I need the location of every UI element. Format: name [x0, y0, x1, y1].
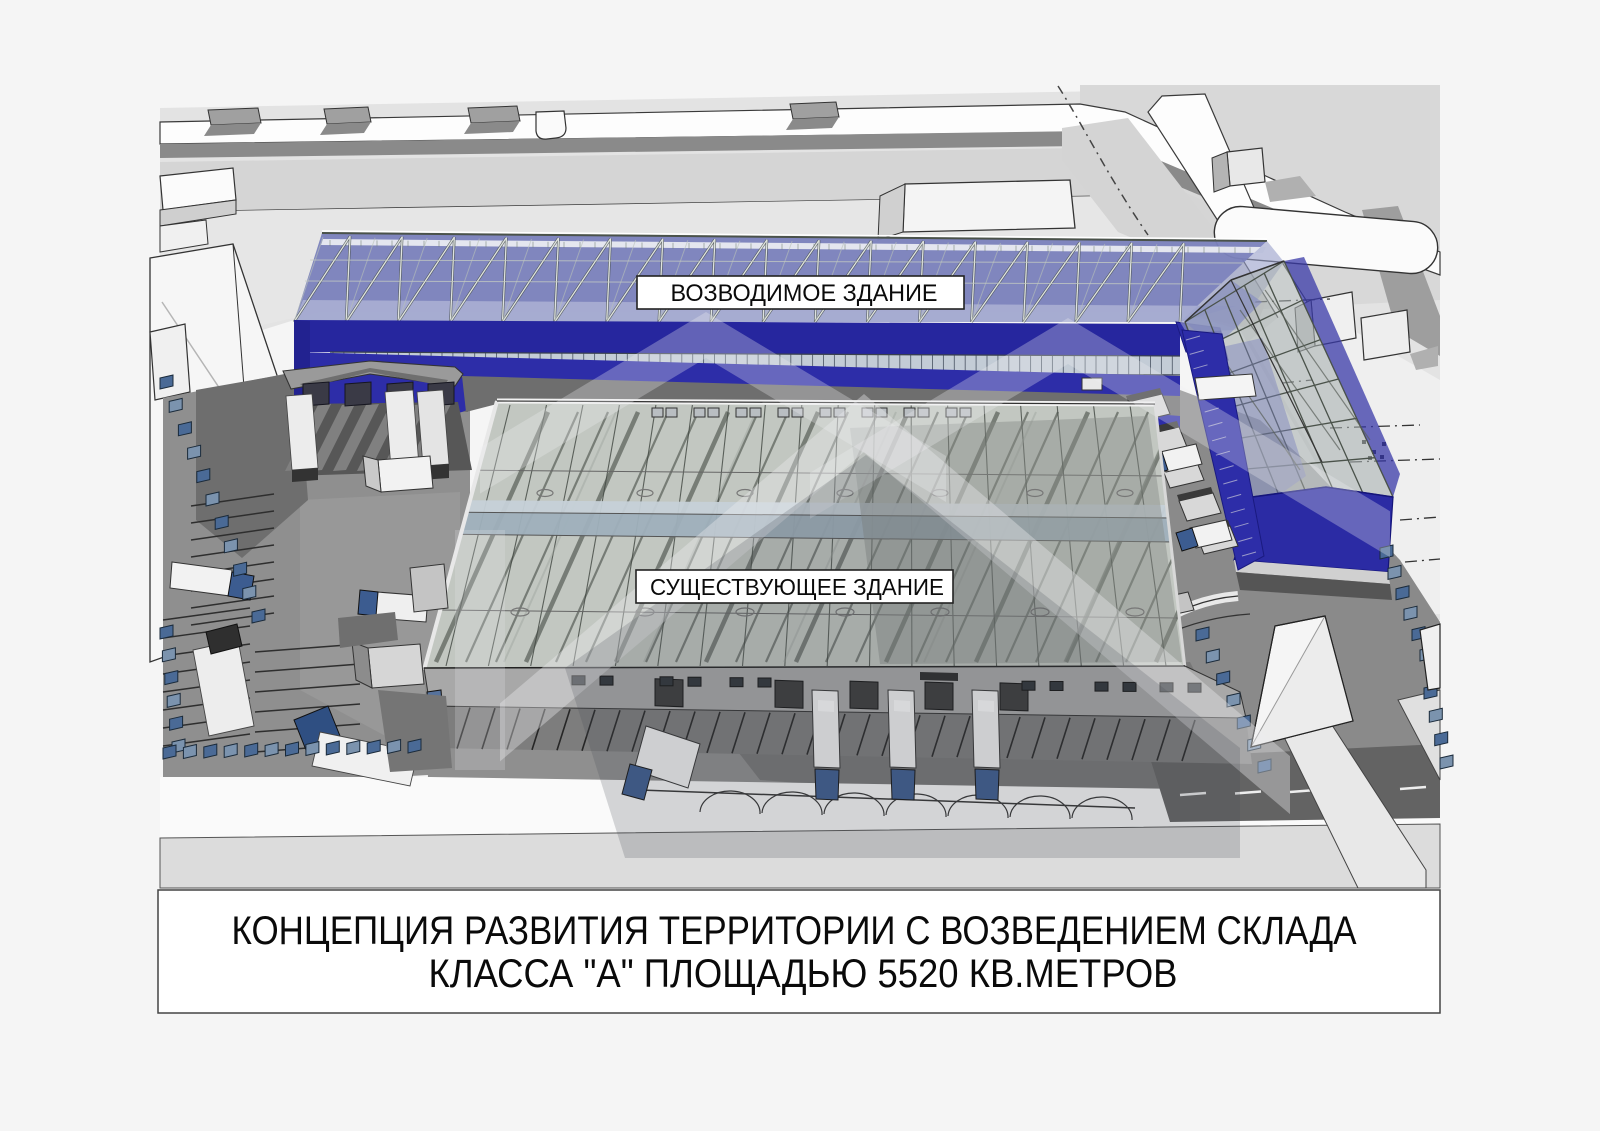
svg-text:КОНЦЕПЦИЯ РАЗВИТИЯ ТЕРРИТОРИИ: КОНЦЕПЦИЯ РАЗВИТИЯ ТЕРРИТОРИИ С ВОЗВЕДЕН…	[232, 909, 1357, 953]
svg-text:СУЩЕСТВУЮЩЕЕ ЗДАНИЕ: СУЩЕСТВУЮЩЕЕ ЗДАНИЕ	[650, 574, 944, 600]
svg-text:ВОЗВОДИМОЕ ЗДАНИЕ: ВОЗВОДИМОЕ ЗДАНИЕ	[671, 280, 938, 307]
svg-text:КЛАССА "А" ПЛОЩАДЬЮ 5520 КВ.МЕ: КЛАССА "А" ПЛОЩАДЬЮ 5520 КВ.МЕТРОВ	[429, 952, 1178, 996]
